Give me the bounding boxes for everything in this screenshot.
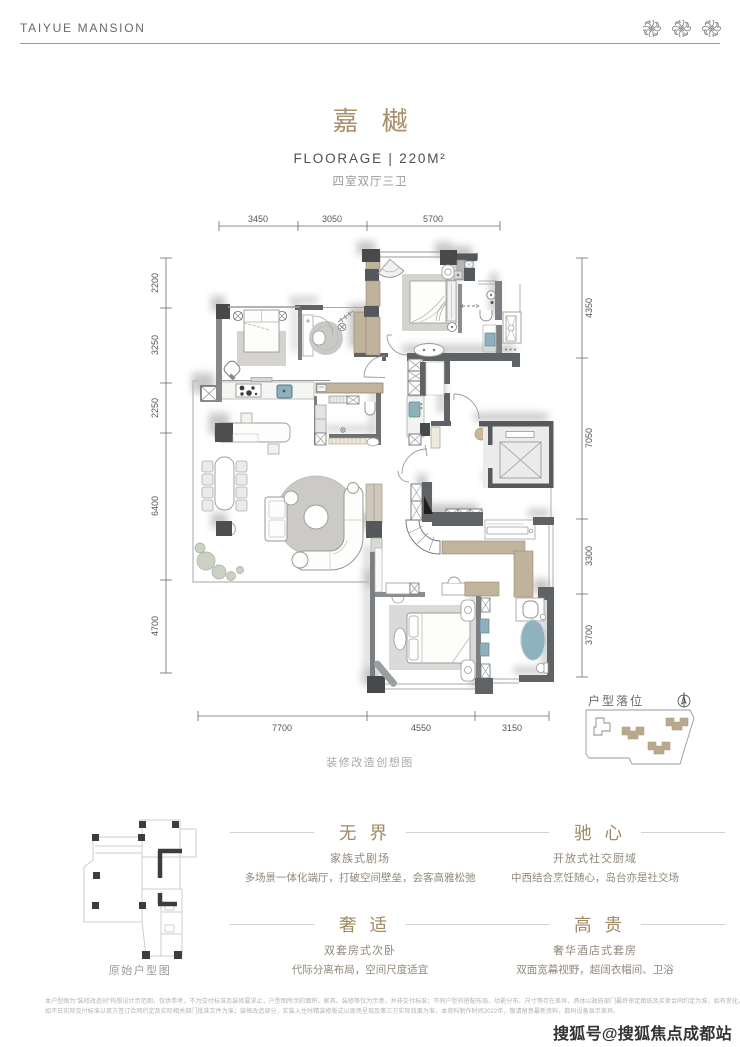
svg-text:3300: 3300 (584, 546, 594, 566)
svg-text:3050: 3050 (322, 214, 342, 224)
svg-text:7050: 7050 (584, 428, 594, 448)
svg-text:7700: 7700 (272, 723, 292, 733)
svg-text:6400: 6400 (150, 496, 160, 516)
svg-text:4350: 4350 (584, 298, 594, 318)
svg-text:2250: 2250 (150, 398, 160, 418)
svg-text:4550: 4550 (411, 723, 431, 733)
svg-text:4700: 4700 (150, 616, 160, 636)
svg-text:3450: 3450 (248, 214, 268, 224)
svg-text:5700: 5700 (423, 214, 443, 224)
svg-text:2200: 2200 (150, 273, 160, 293)
svg-text:3150: 3150 (502, 723, 522, 733)
svg-text:3250: 3250 (150, 335, 160, 355)
svg-text:3700: 3700 (584, 625, 594, 645)
